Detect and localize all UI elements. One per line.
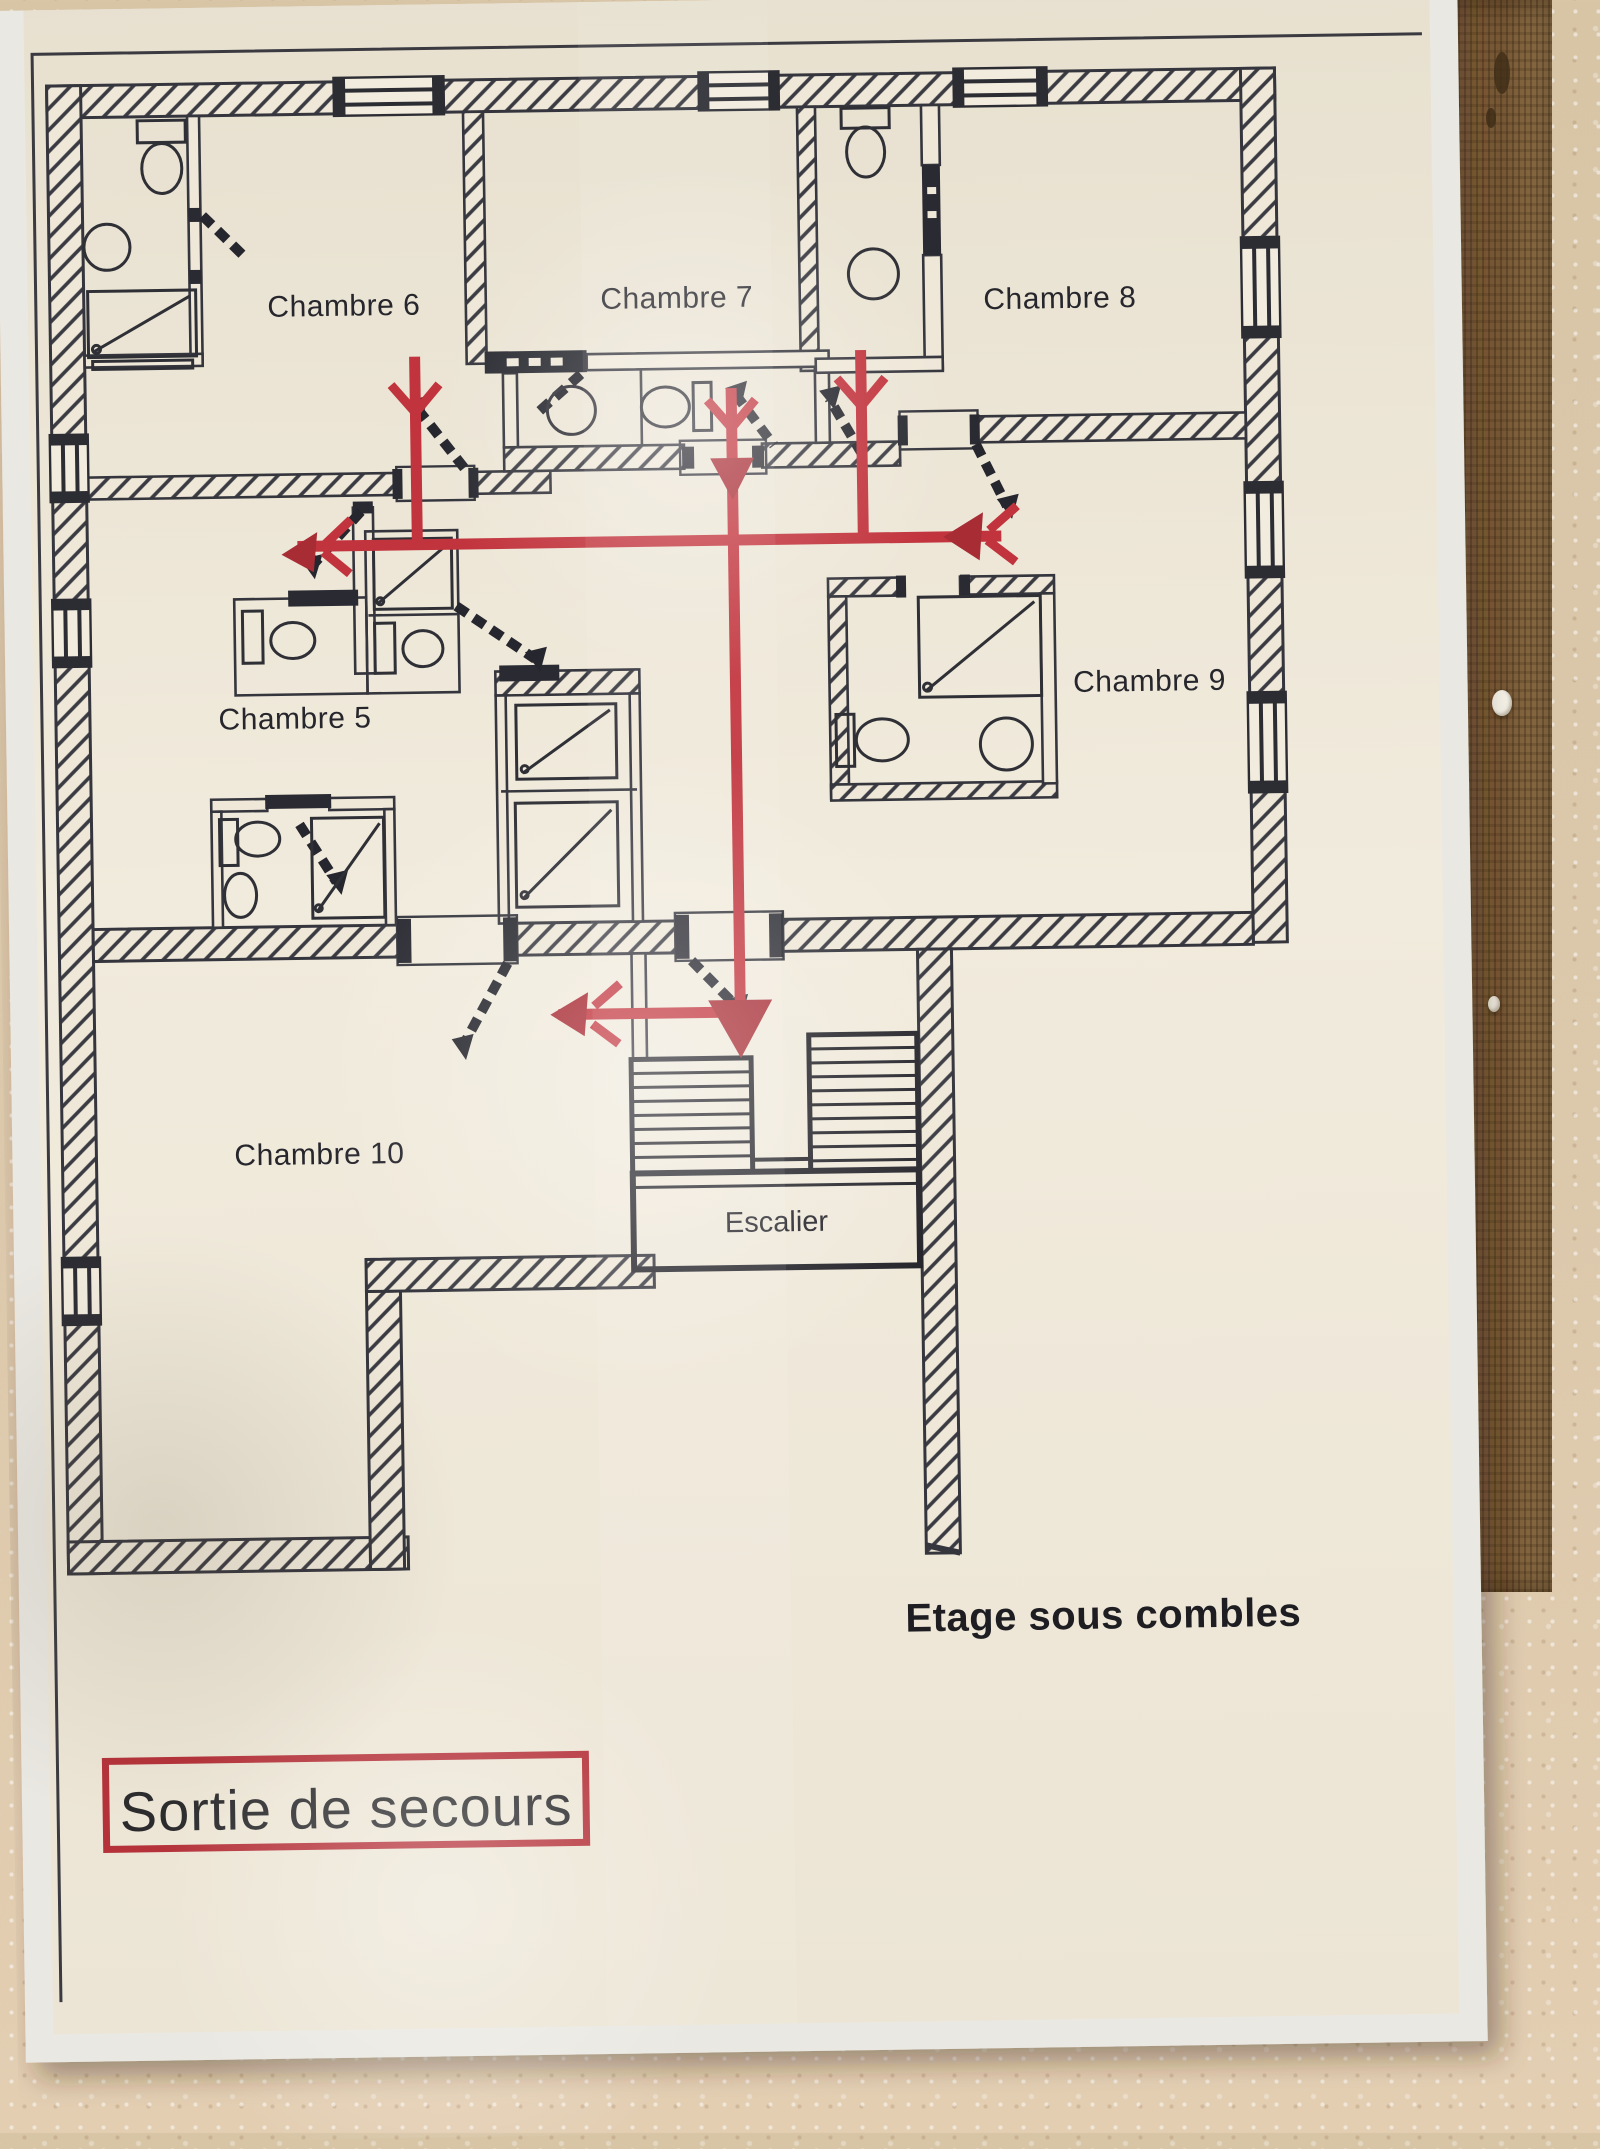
legend-label: Sortie de secours [119, 1774, 573, 1844]
window-icon [333, 76, 444, 116]
window-icon [62, 1257, 101, 1325]
window-icon [50, 435, 89, 503]
room-label-chambre-9: Chambre 9 [1073, 664, 1226, 699]
window-icon [52, 600, 91, 668]
room-label-chambre-7: Chambre 7 [600, 281, 753, 316]
floor-caption: Etage sous combles [905, 1591, 1301, 1641]
window-icon [953, 67, 1047, 106]
window-icon [1248, 692, 1287, 793]
room-label-chambre-8: Chambre 8 [983, 281, 1136, 316]
room-label-chambre-6: Chambre 6 [267, 289, 420, 324]
window-icon [1241, 237, 1280, 338]
room-label-chambre-5: Chambre 5 [218, 701, 371, 736]
stair-label: Escalier [725, 1206, 829, 1240]
window-icon [1245, 482, 1284, 578]
evacuation-plan-poster: Chambre 6 Chambre 7 Chambre 8 Chambre 5 … [0, 0, 1600, 2144]
room-label-chambre-10: Chambre 10 [234, 1137, 405, 1173]
floor-plan-svg: Chambre 6 Chambre 7 Chambre 8 Chambre 5 … [0, 0, 1600, 2144]
window-icon [698, 71, 779, 110]
